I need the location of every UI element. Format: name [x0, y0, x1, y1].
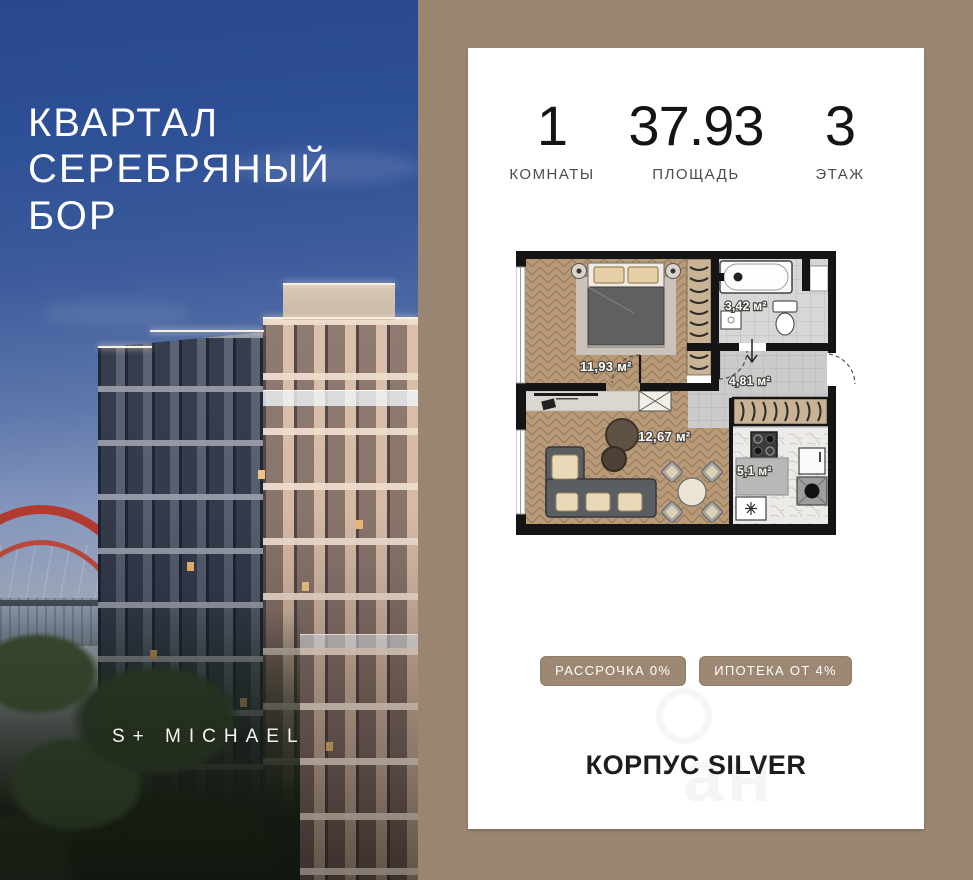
kitchen-sink	[797, 477, 827, 505]
bedroom-area-label: 11,93 м²	[580, 359, 632, 374]
closet	[687, 259, 711, 375]
living-area-label: 12,67 м²	[638, 429, 691, 444]
floor-plan-drawing: 11,93 м² 3,42 м² 4,81 м² 12,67 м² 5,1 м²	[516, 251, 856, 541]
bathtub	[719, 261, 792, 293]
nightstand-lamp-right	[666, 264, 681, 279]
project-title-line3: БОР	[28, 193, 331, 239]
bathroom-sink	[721, 311, 741, 329]
installment-badge[interactable]: РАССРОЧКА 0%	[540, 656, 686, 686]
area-label: ПЛОЩАДЬ	[628, 166, 763, 183]
apartment-card: 1 КОМНАТЫ 37.93 ПЛОЩАДЬ 3 ЭТАЖ	[468, 48, 924, 829]
fridge	[799, 448, 825, 474]
stat-floor: 3 ЭТАЖ	[790, 98, 890, 183]
developer-brand-logo: S+ MICHAEL	[112, 726, 306, 748]
tv-console	[524, 391, 671, 411]
listing-promo-image: КВАРТАЛ СЕРЕБРЯНЫЙ БОР S+ MICHAEL 1 КОМН…	[0, 0, 973, 880]
stat-area: 37.93 ПЛОЩАДЬ	[628, 98, 763, 183]
stove	[751, 432, 777, 458]
stat-rooms: 1 КОМНАТЫ	[502, 98, 602, 183]
rooms-label: КОМНАТЫ	[502, 166, 602, 183]
project-title-line2: СЕРЕБРЯНЫЙ	[28, 146, 331, 192]
mortgage-badge[interactable]: ИПОТЕКА ОТ 4%	[699, 656, 852, 686]
building-title: КОРПУС SILVER	[468, 750, 924, 781]
bed	[576, 263, 676, 355]
hallway-area-label: 4,81 м²	[729, 374, 771, 388]
nightstand-lamp-left	[572, 264, 587, 279]
building-photo: КВАРТАЛ СЕРЕБРЯНЫЙ БОР S+ MICHAEL	[0, 0, 418, 880]
promo-badges: РАССРОЧКА 0% ИПОТЕКА ОТ 4%	[468, 656, 924, 686]
right-panel: 1 КОМНАТЫ 37.93 ПЛОЩАДЬ 3 ЭТАЖ	[418, 0, 973, 880]
floor-value: 3	[790, 98, 890, 154]
project-title: КВАРТАЛ СЕРЕБРЯНЫЙ БОР	[28, 100, 331, 239]
project-title-line1: КВАРТАЛ	[28, 100, 331, 146]
area-value: 37.93	[628, 98, 763, 154]
kitchen-area-label: 5,1 м²	[737, 464, 772, 478]
bathroom-area-label: 3,42 м²	[725, 299, 767, 313]
utility-shaft	[810, 266, 828, 291]
rooms-value: 1	[502, 98, 602, 154]
stats-row: 1 КОМНАТЫ 37.93 ПЛОЩАДЬ 3 ЭТАЖ	[468, 98, 924, 183]
washing-machine	[736, 497, 766, 520]
entry-wardrobe	[733, 398, 828, 425]
floor-label: ЭТАЖ	[790, 166, 890, 183]
floor-plan: 11,93 м² 3,42 м² 4,81 м² 12,67 м² 5,1 м²	[516, 251, 856, 541]
